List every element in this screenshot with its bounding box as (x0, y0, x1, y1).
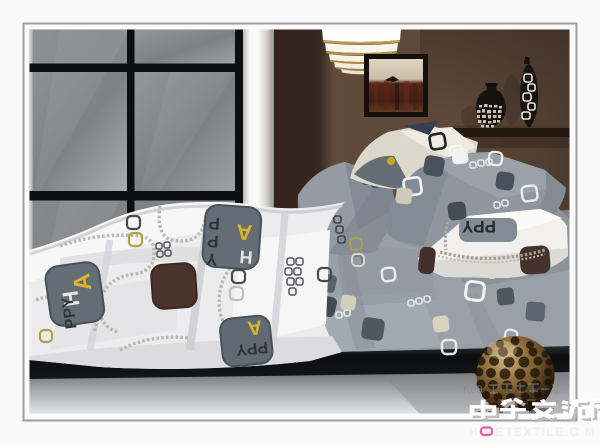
svg-text:H: H (239, 247, 253, 268)
svg-text:A: A (246, 315, 263, 338)
svg-text:P: P (208, 213, 221, 233)
svg-text:PPY: PPY (461, 217, 496, 236)
svg-text:A: A (235, 219, 253, 245)
svg-text:K03: K03 (463, 384, 483, 396)
svg-text:PPY: PPY (235, 338, 269, 358)
svg-text:P: P (207, 231, 220, 251)
svg-text:Y: Y (205, 249, 218, 269)
